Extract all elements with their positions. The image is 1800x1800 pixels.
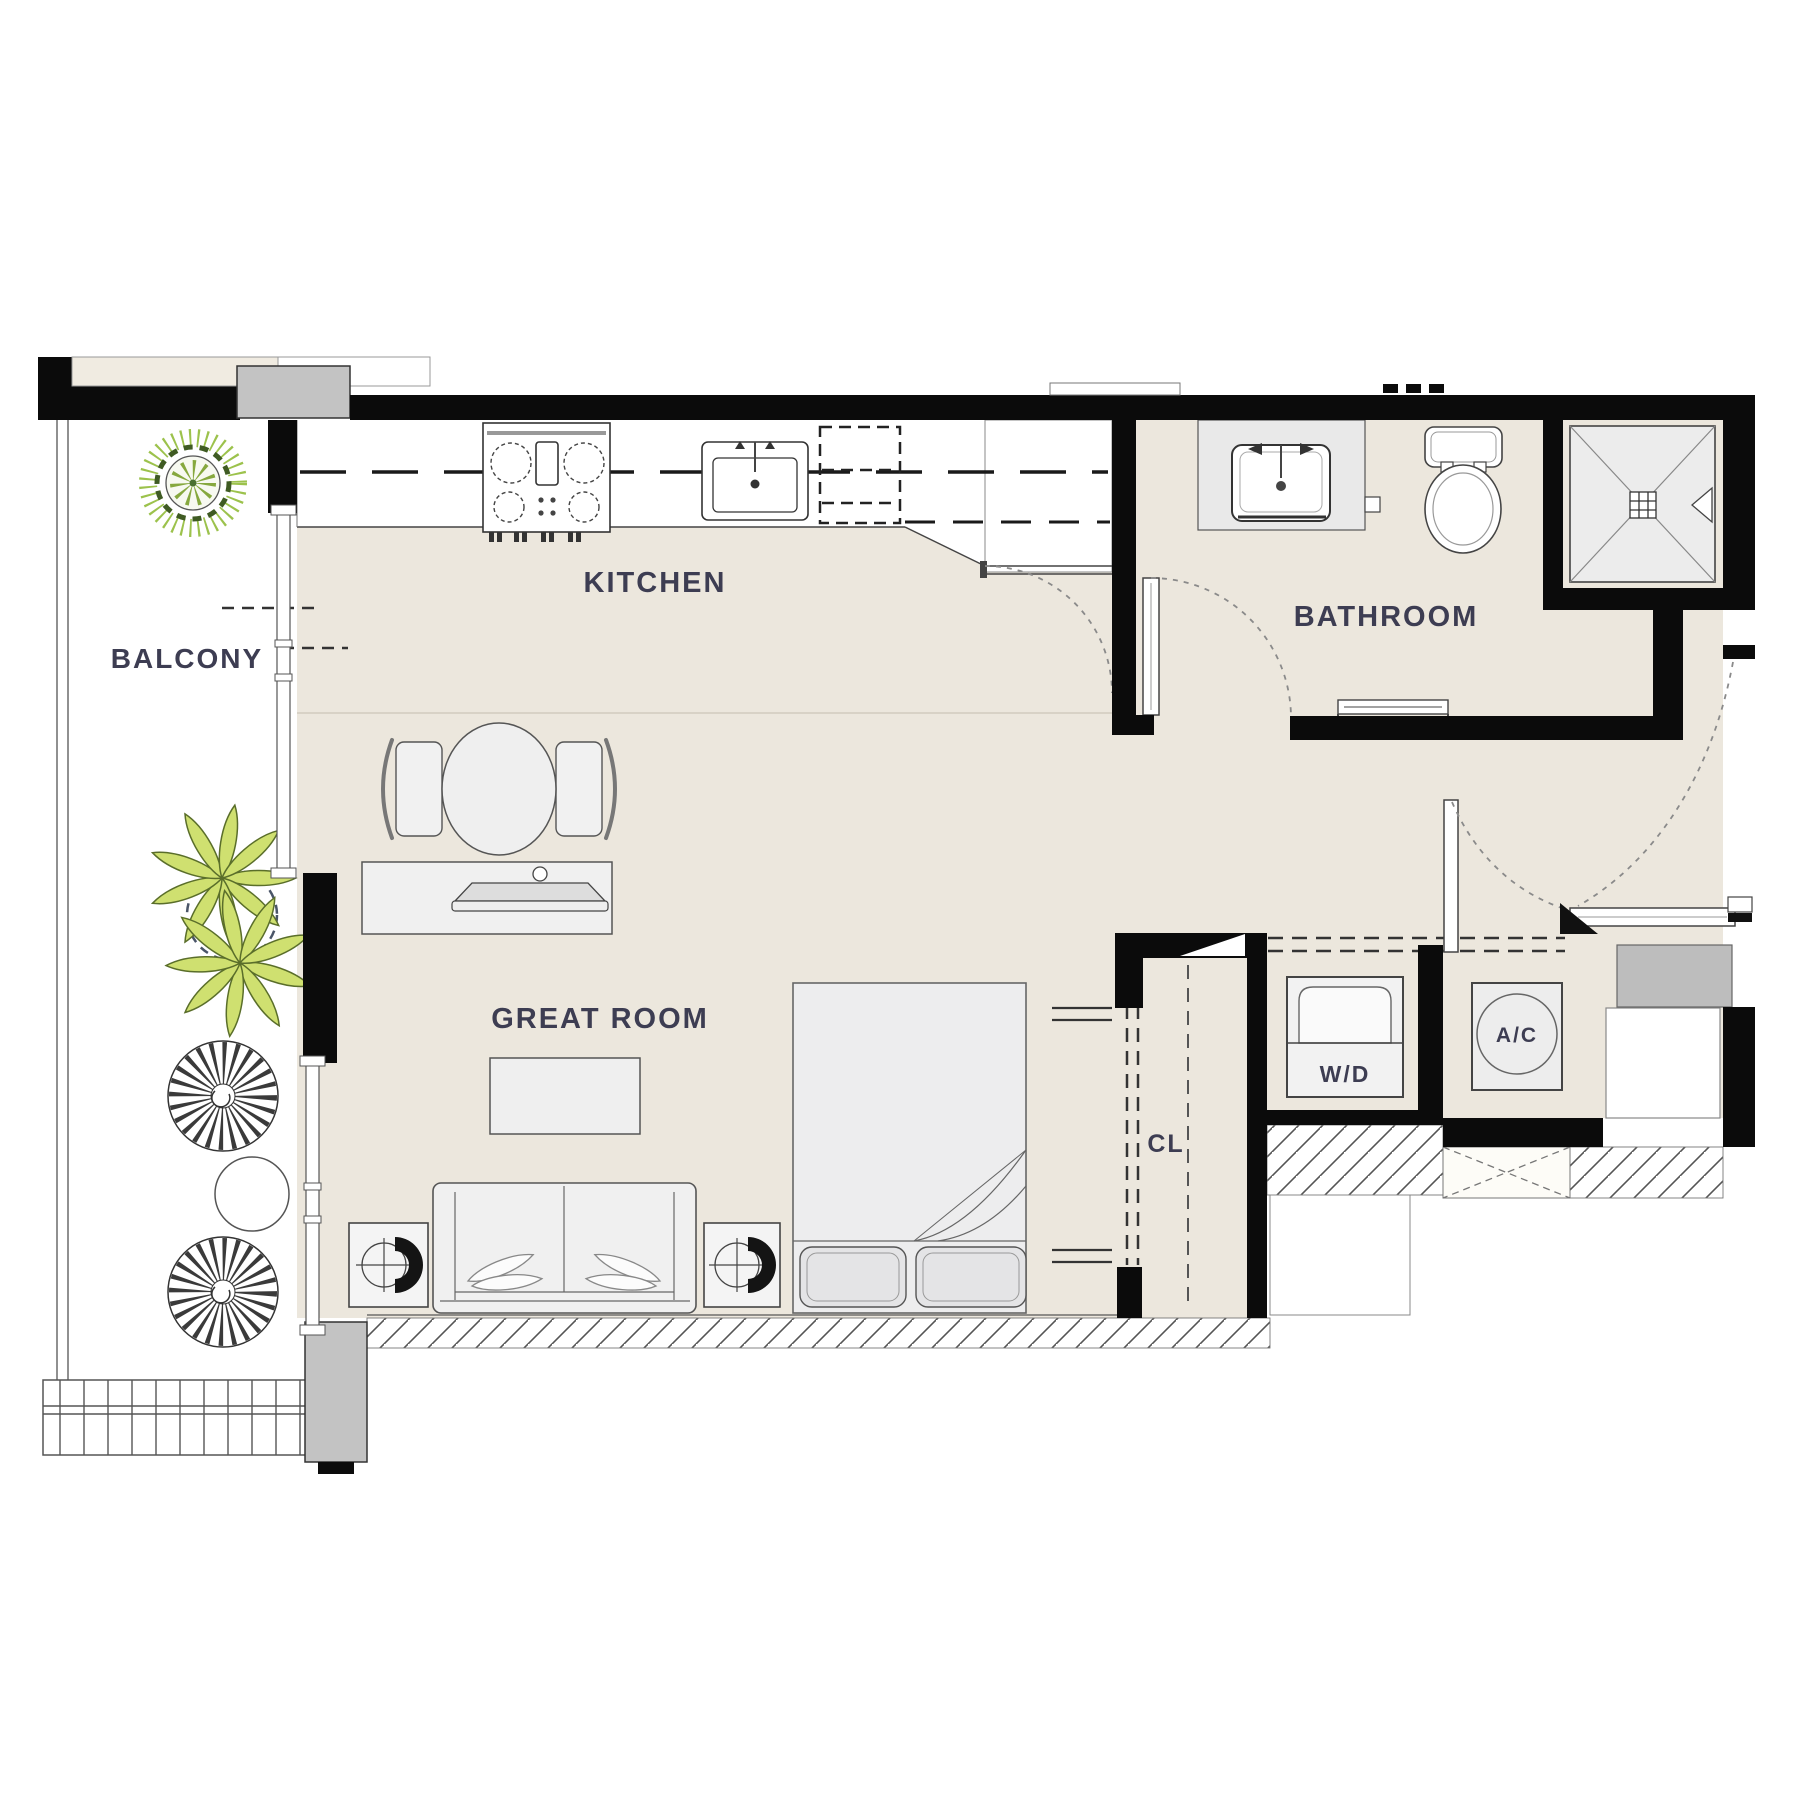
column-gray: [237, 366, 350, 418]
pillow: [916, 1247, 1026, 1307]
shaft-xbox: [1443, 1147, 1570, 1198]
entry-mat: [1617, 945, 1732, 1007]
label-bathroom: BATHROOM: [1294, 601, 1479, 633]
column-gray: [305, 1322, 367, 1462]
vanity-sink: [1198, 420, 1380, 530]
end-table-left: [349, 1223, 428, 1307]
balcony-railing: [43, 1380, 307, 1455]
coffee-table: [490, 1058, 640, 1134]
exterior-cutout: [1603, 1118, 1723, 1147]
floor-plan: BALCONY KITCHEN BATHROOM GREAT ROOM CL W…: [0, 0, 1800, 1800]
bed: [793, 983, 1026, 1313]
floor-plan-page: BALCONY KITCHEN BATHROOM GREAT ROOM CL W…: [0, 0, 1800, 1800]
end-table-right: [704, 1223, 780, 1307]
label-balcony: BALCONY: [111, 643, 263, 674]
corridor-bay: [1270, 1195, 1410, 1315]
kitchen-sink: [702, 441, 808, 520]
pillow: [800, 1247, 906, 1307]
label-great-room: GREAT ROOM: [491, 1003, 709, 1035]
sofa: [433, 1183, 696, 1313]
ac-closet-door: [1444, 800, 1458, 952]
shower-drain: [1630, 492, 1656, 518]
wicker-chair-icon: [168, 1041, 278, 1151]
shower: [1570, 426, 1715, 582]
label-kitchen: KITCHEN: [584, 567, 727, 599]
dining-table: [442, 723, 556, 855]
tv-mount: [533, 867, 547, 881]
range-cooktop: [483, 423, 610, 542]
balcony-tree-icon: [140, 430, 246, 536]
tv-console: [362, 862, 612, 934]
dining-chair: [396, 742, 442, 836]
pantry-closet: [985, 420, 1112, 572]
wicker-chair-icon: [168, 1237, 278, 1347]
dining-chair: [556, 742, 602, 836]
label-closet: CL: [1147, 1130, 1184, 1158]
balcony-side-table: [215, 1157, 289, 1231]
window-band-hatch: [367, 1318, 1270, 1348]
label-ac: A/C: [1496, 1024, 1538, 1047]
entry-niche: [1606, 1008, 1720, 1118]
tv-icon: [455, 883, 605, 901]
toilet: [1425, 427, 1502, 553]
label-laundry: W/D: [1320, 1061, 1371, 1087]
